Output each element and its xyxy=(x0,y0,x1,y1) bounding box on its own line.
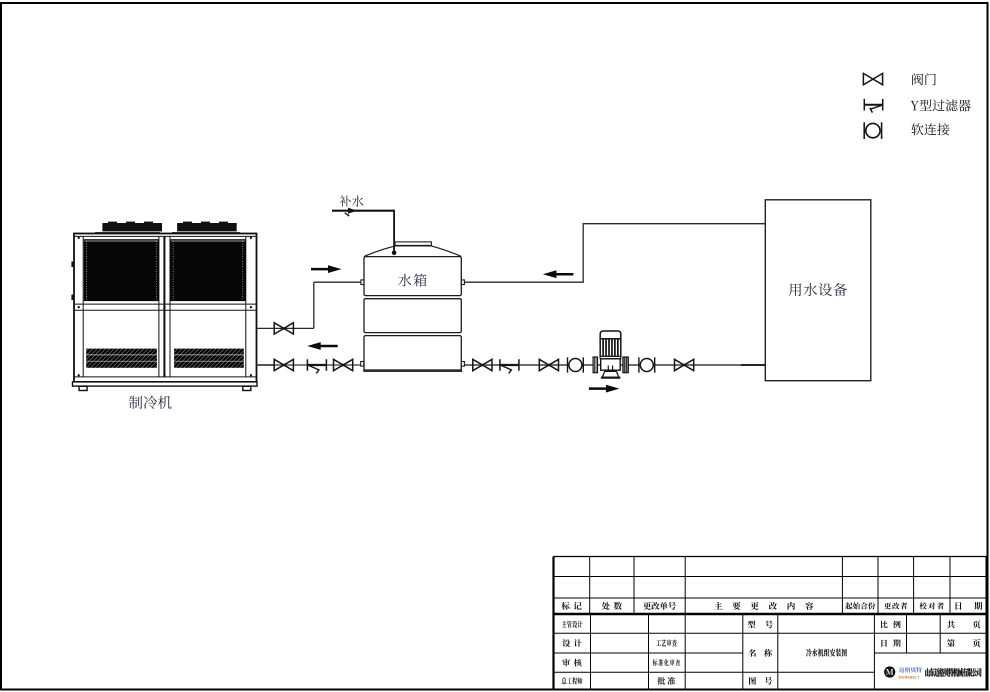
svg-text:MGREBELT: MGREBELT xyxy=(899,675,920,679)
